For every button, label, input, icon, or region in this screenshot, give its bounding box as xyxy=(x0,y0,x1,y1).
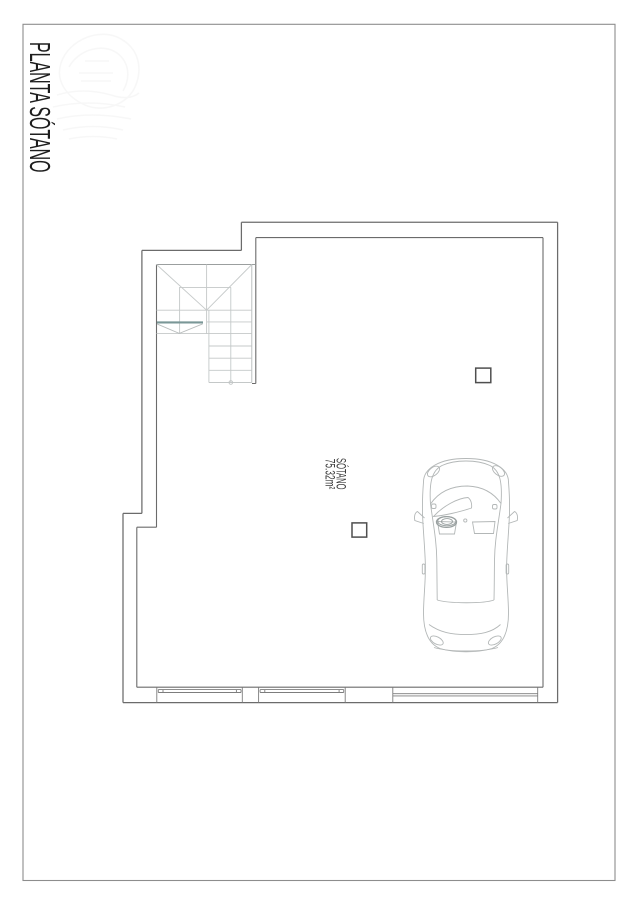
svg-text:PLANTA SÓTANO: PLANTA SÓTANO xyxy=(23,42,56,173)
svg-text:75.32m²: 75.32m² xyxy=(323,459,338,490)
